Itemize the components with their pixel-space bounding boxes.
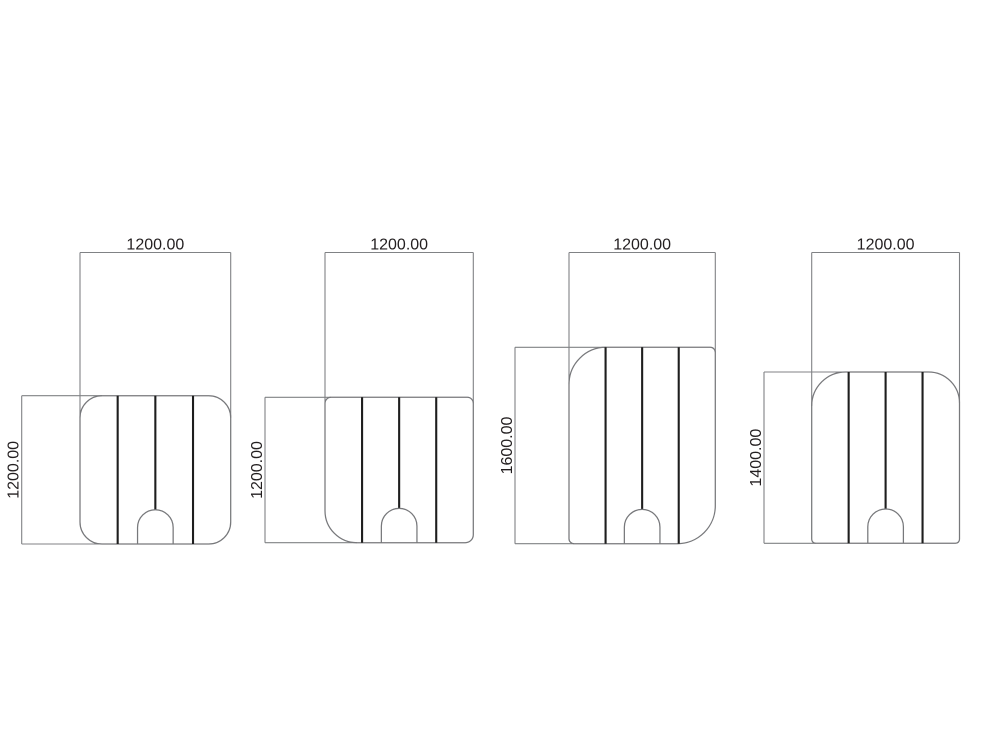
- height-dim-label: 1600.00: [499, 416, 516, 474]
- height-dim-label: 1400.00: [748, 429, 765, 487]
- width-dim-label: 1200.00: [613, 237, 671, 254]
- width-dim-label: 1200.00: [857, 237, 915, 254]
- arch-cutout: [381, 508, 417, 542]
- panel-1200x1600-diagonal-rounded: 1200.001600.00: [499, 237, 715, 544]
- arch-cutout: [624, 509, 660, 543]
- width-dim-label: 1200.00: [126, 237, 184, 254]
- height-dim-label: 1200.00: [249, 441, 266, 499]
- arch-cutout: [868, 509, 904, 543]
- drawing-canvas: 1200.001200.001200.001200.001200.001600.…: [0, 0, 1000, 755]
- panel-1200x1200-all-corners-rounded: 1200.001200.00: [6, 237, 231, 545]
- panel-1200x1200-bottom-left-rounded: 1200.001200.00: [249, 237, 473, 543]
- panel-1200x1400-top-rounded: 1200.001400.00: [748, 237, 960, 544]
- height-dim-label: 1200.00: [6, 441, 23, 499]
- width-dim-label: 1200.00: [370, 237, 428, 254]
- technical-drawing-svg: 1200.001200.001200.001200.001200.001600.…: [0, 0, 1000, 755]
- arch-cutout: [138, 510, 174, 544]
